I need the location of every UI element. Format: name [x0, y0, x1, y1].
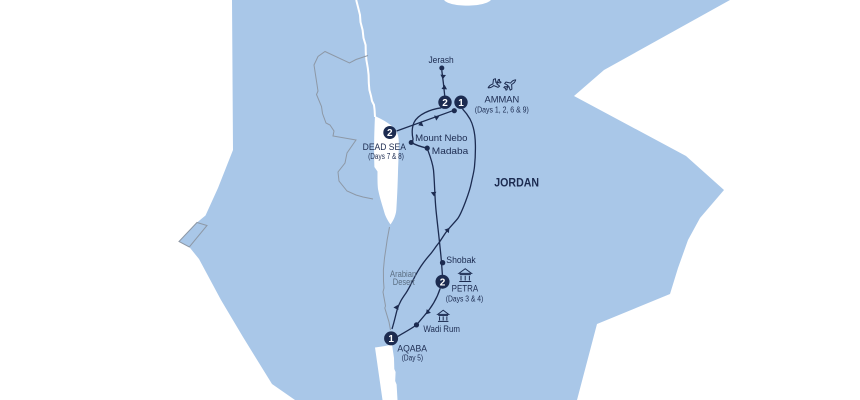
svg-text:Wadi Rum: Wadi Rum: [423, 324, 460, 335]
svg-text:PETRA: PETRA: [452, 284, 479, 294]
svg-text:Shobak: Shobak: [446, 255, 476, 266]
svg-text:AMMAN: AMMAN: [485, 94, 520, 104]
svg-text:Jerash: Jerash: [428, 55, 453, 66]
svg-text:Desert: Desert: [393, 277, 415, 287]
svg-text:(Days 1, 2, 6 & 9): (Days 1, 2, 6 & 9): [475, 106, 529, 115]
svg-text:Madaba: Madaba: [432, 146, 469, 157]
svg-text:(Days 7 & 8): (Days 7 & 8): [368, 152, 404, 161]
svg-text:Mount Nebo: Mount Nebo: [415, 133, 467, 144]
svg-text:DEAD SEA: DEAD SEA: [363, 142, 406, 152]
svg-text:AQABA: AQABA: [397, 343, 427, 353]
svg-text:1: 1: [388, 334, 394, 345]
svg-text:2: 2: [442, 98, 448, 109]
svg-text:2: 2: [387, 128, 393, 139]
svg-text:1: 1: [458, 98, 464, 109]
svg-text:(Days 3 & 4): (Days 3 & 4): [446, 295, 484, 304]
svg-text:JORDAN: JORDAN: [494, 176, 539, 190]
svg-text:(Day 5): (Day 5): [402, 354, 424, 363]
svg-text:2: 2: [440, 277, 446, 288]
